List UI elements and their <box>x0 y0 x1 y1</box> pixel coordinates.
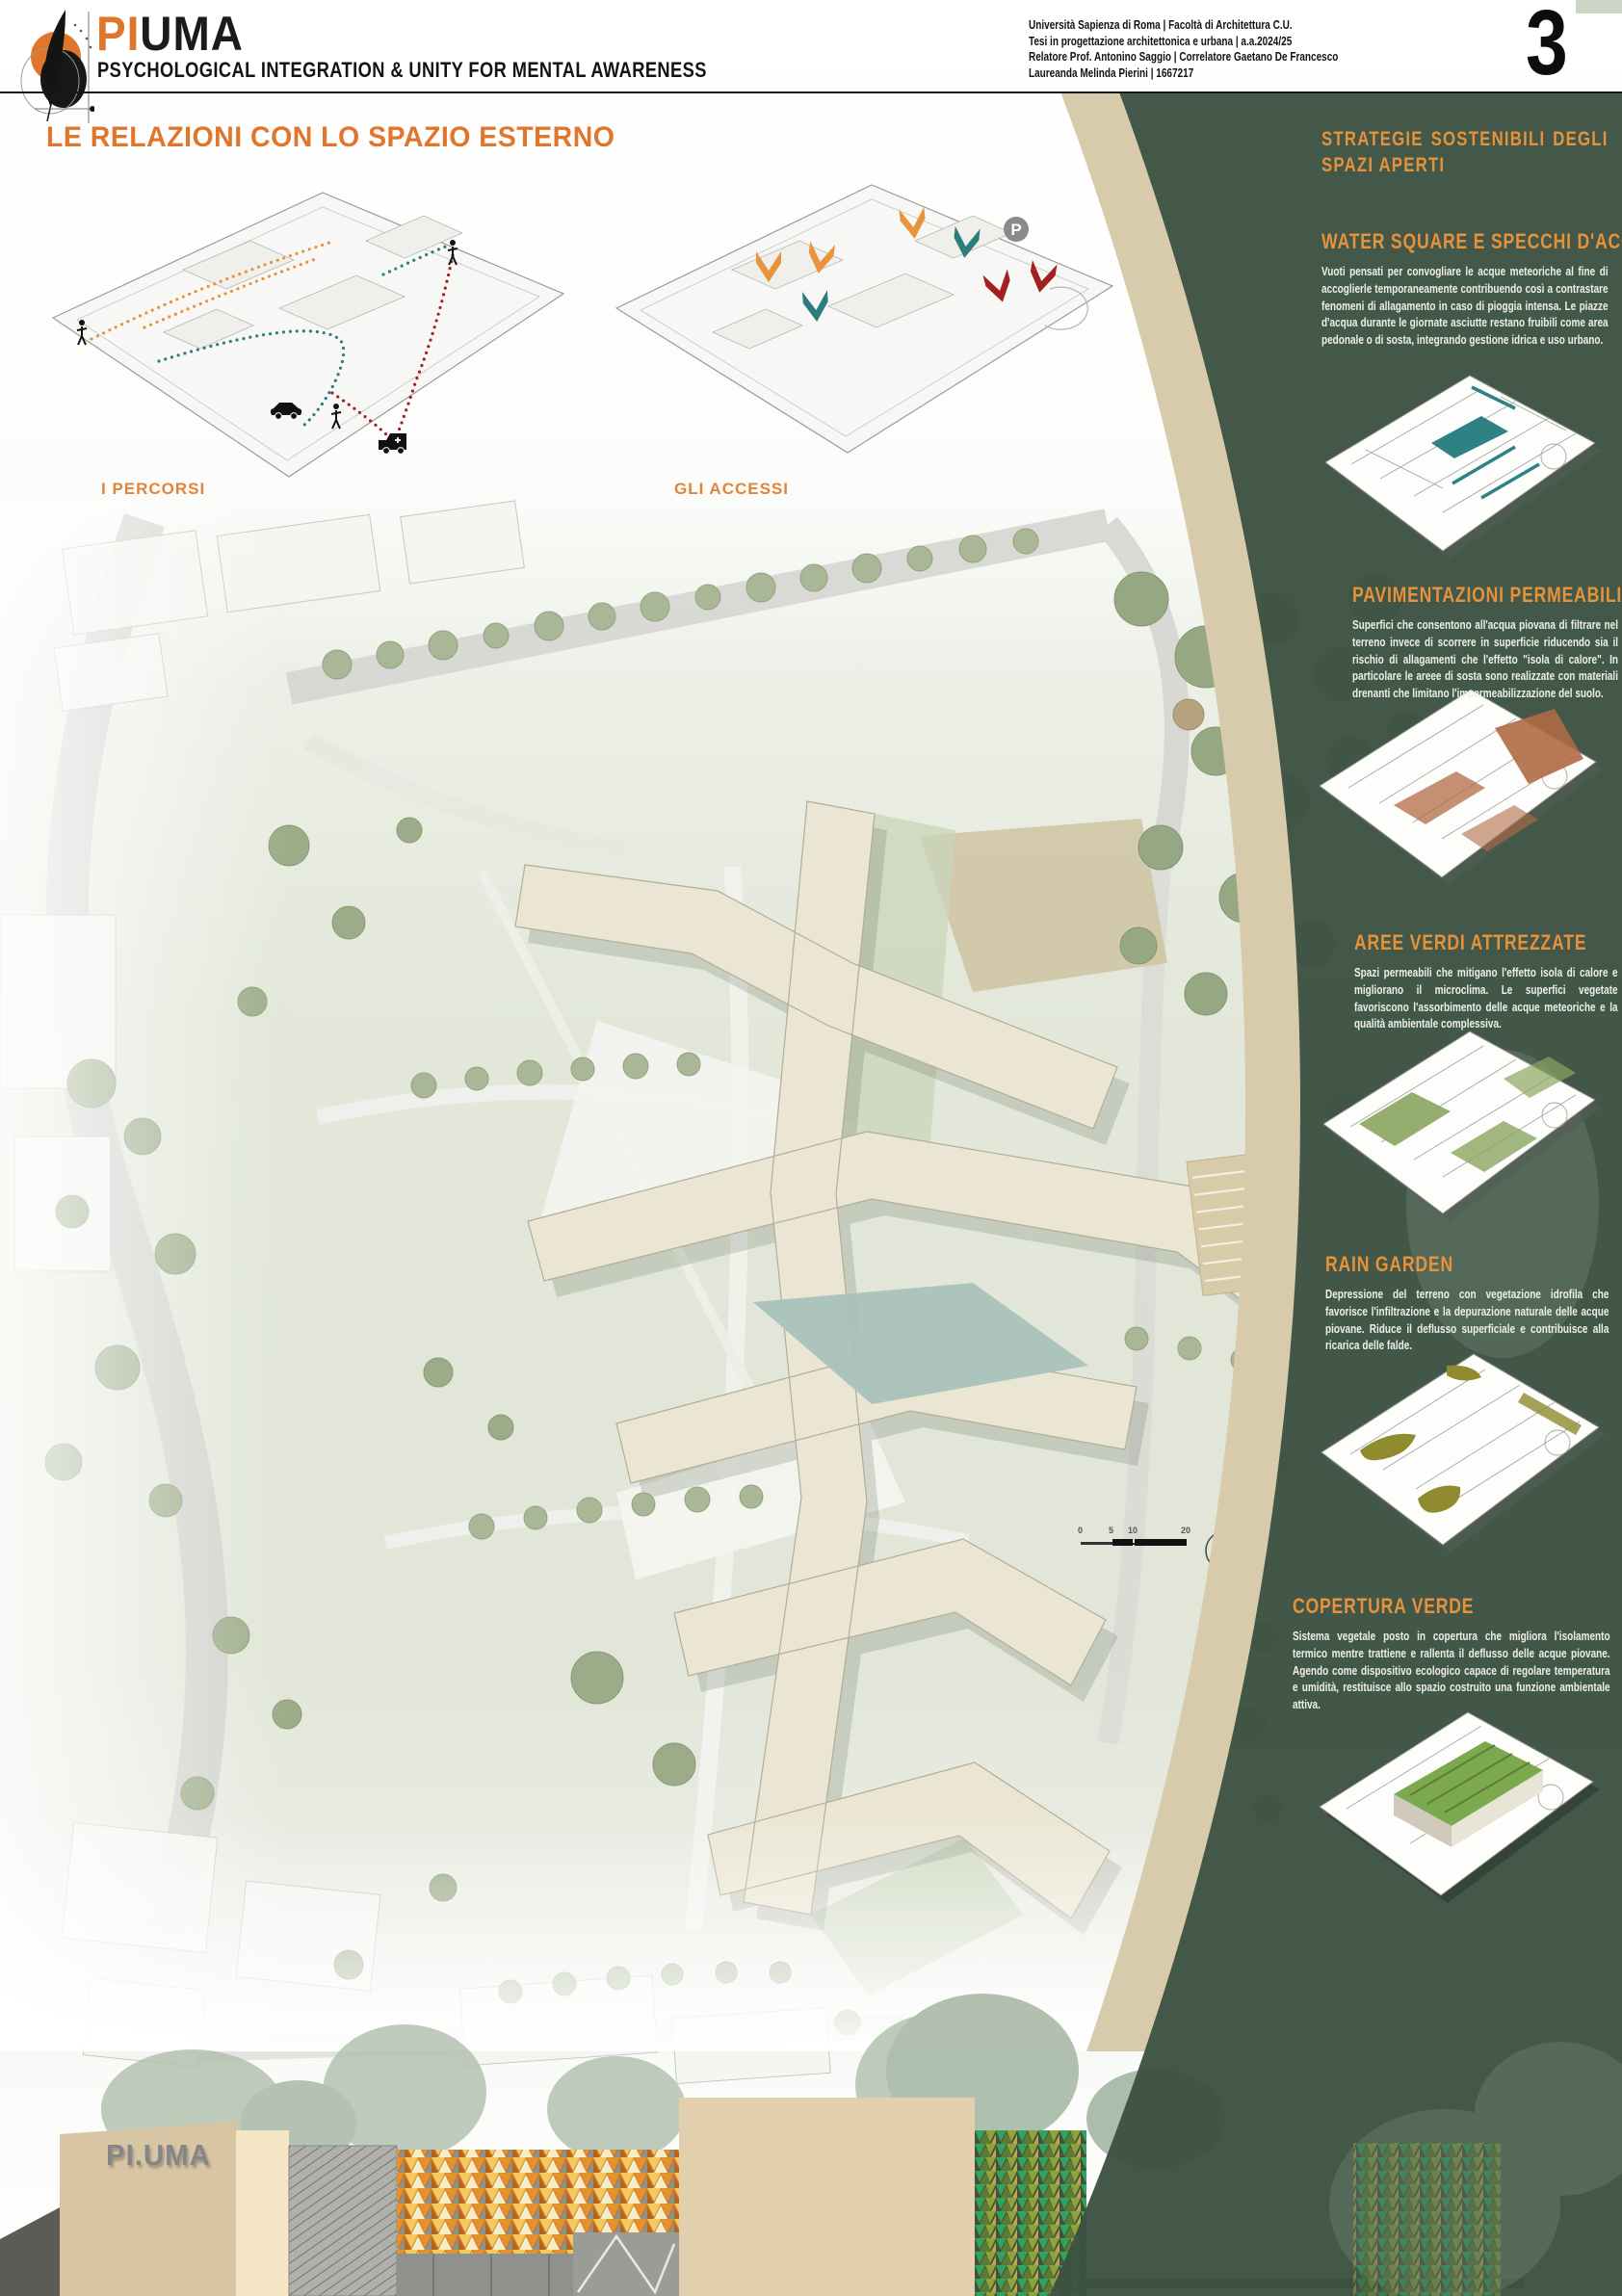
info-line: Laureanda Melinda Pierini | 1667217 <box>1029 65 1460 82</box>
truss-section <box>573 2232 679 2296</box>
section-pavimentazioni: PAVIMENTAZIONI PERMEABILI Superfici che … <box>1352 583 1618 703</box>
page-number: 3 <box>1526 0 1568 96</box>
info-line: Università Sapienza di Roma | Facoltà di… <box>1029 17 1460 34</box>
section-body: Spazi permeabili che mitigano l'effetto … <box>1354 965 1618 1033</box>
thesis-board: 0 5 10 20 N <box>0 0 1622 2296</box>
accessi-label: GLI ACCESSI <box>674 480 789 499</box>
section-aree-verdi: AREE VERDI ATTREZZATE Spazi permeabili c… <box>1354 930 1618 1033</box>
info-line: Relatore Prof. Antonino Saggio | Correla… <box>1029 49 1460 65</box>
section-body: Sistema vegetale posto in copertura che … <box>1293 1629 1610 1714</box>
svg-text:20: 20 <box>1181 1526 1190 1535</box>
beige-volume <box>679 2098 975 2296</box>
parking-icon: P <box>1004 217 1029 242</box>
section-heading: COPERTURA VERDE <box>1293 1594 1610 1619</box>
svg-text:5: 5 <box>1109 1526 1113 1535</box>
header-rule <box>0 91 1622 93</box>
brand-pi: PI <box>96 7 140 61</box>
section-heading: WATER SQUARE E SPECCHI D'ACQUA <box>1321 229 1609 254</box>
section-body: Superfici che consentono all'acqua piova… <box>1352 617 1618 703</box>
section-heading: PAVIMENTAZIONI PERMEABILI <box>1352 583 1618 608</box>
section-body: Vuoti pensati per convogliare le acque m… <box>1321 264 1609 350</box>
svg-text:10: 10 <box>1128 1526 1138 1535</box>
svg-text:P: P <box>1010 221 1021 239</box>
brand-title: PIUMA <box>96 6 244 62</box>
section-copertura-verde: COPERTURA VERDE Sistema vegetale posto i… <box>1293 1594 1610 1714</box>
page-title: LE RELAZIONI CON LO SPAZIO ESTERNO <box>46 121 615 154</box>
cream-volume <box>236 2130 289 2296</box>
section-rain-garden: RAIN GARDEN Depressione del terreno con … <box>1325 1252 1609 1355</box>
brand-rest: UMA <box>140 7 244 61</box>
green-mosaic-facade-2 <box>1353 2143 1501 2296</box>
section-heading: AREE VERDI ATTREZZATE <box>1354 930 1618 955</box>
brand-subtitle: PSYCHOLOGICAL INTEGRATION & UNITY FOR ME… <box>97 58 707 83</box>
section-body: Depressione del terreno con vegetazione … <box>1325 1287 1609 1355</box>
section-heading: RAIN GARDEN <box>1325 1252 1609 1277</box>
percorsi-label: I PERCORSI <box>101 480 205 499</box>
section-water-square: WATER SQUARE E SPECCHI D'ACQUA Vuoti pen… <box>1321 229 1609 350</box>
header-info: Università Sapienza di Roma | Facoltà di… <box>1029 17 1460 81</box>
info-line: Tesi in progettazione architettonica e u… <box>1029 34 1460 50</box>
lattice-screen <box>289 2146 397 2296</box>
svg-text:0: 0 <box>1078 1526 1083 1535</box>
sidebar-title: STRATEGIE SOSTENIBILI DEGLI SPAZI APERTI <box>1321 126 1609 179</box>
building-sign: PI.UMA <box>106 2138 211 2173</box>
piuma-logo <box>6 4 94 119</box>
corner-sliver <box>1576 0 1622 13</box>
